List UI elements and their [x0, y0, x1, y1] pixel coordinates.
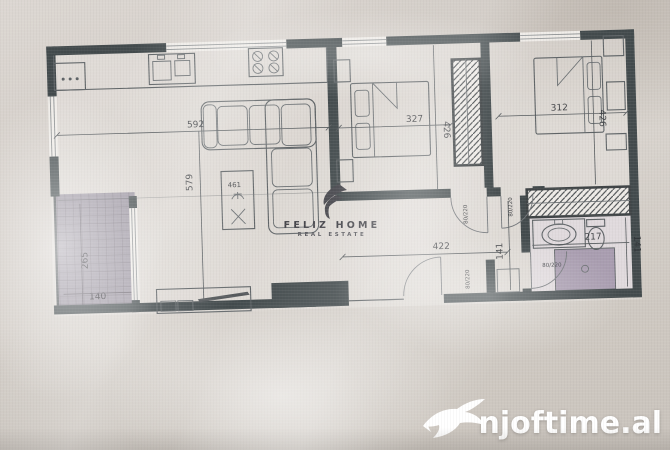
window-bedroom2 — [520, 31, 580, 42]
dim-hall-width: 422 — [433, 242, 450, 253]
dim-bedroom1-width: 327 — [406, 115, 423, 126]
wardrobe-1 — [452, 59, 483, 166]
door-label-bathroom: 80/220 — [542, 262, 562, 269]
dim-living-width: 592 — [187, 120, 204, 131]
dim-living-height: 579 — [185, 173, 196, 191]
feliz-home-flame-icon — [315, 183, 349, 219]
door-label-entry: 80/220 — [465, 269, 472, 289]
wall-left-1 — [46, 46, 56, 96]
wall-pier — [271, 281, 349, 308]
wardrobe-2 — [527, 186, 631, 217]
agency-tagline: REAL ESTATE — [279, 232, 385, 238]
watermark-text: njoftime.al — [479, 406, 662, 441]
dim-bedroom2-height: 426 — [596, 109, 607, 127]
door-label-bedroom2: 80/220 — [508, 197, 515, 217]
watermark: njoftime.al — [421, 400, 662, 446]
wall-left-2 — [49, 156, 59, 196]
dim-bath-width: 217 — [584, 232, 601, 243]
dim-hall-height: 141 — [495, 243, 506, 260]
balcony: 265 140 — [55, 192, 138, 310]
wall-hall-bath-2 — [523, 288, 532, 300]
wall-stub-doors — [487, 187, 501, 196]
dim-bedroom2-width: 312 — [551, 103, 568, 114]
bathroom — [530, 215, 633, 291]
dim-bedroom1-height: 426 — [441, 121, 452, 139]
window-living-left — [48, 96, 59, 156]
window-bedroom1 — [342, 37, 386, 47]
dim-bath-height: 141 — [631, 236, 642, 253]
wall-hall-niche — [486, 259, 496, 292]
dim-living-label: 461 — [228, 181, 242, 189]
door-label-bedroom1: 80/220 — [463, 204, 470, 224]
floorplan-photo: 265 140 — [0, 0, 670, 450]
swallow-bird-icon — [421, 396, 487, 442]
shower — [554, 248, 615, 291]
agency-name: FELIZ HOME — [279, 220, 385, 231]
agency-logo: FELIZ HOME REAL ESTATE — [279, 183, 385, 238]
